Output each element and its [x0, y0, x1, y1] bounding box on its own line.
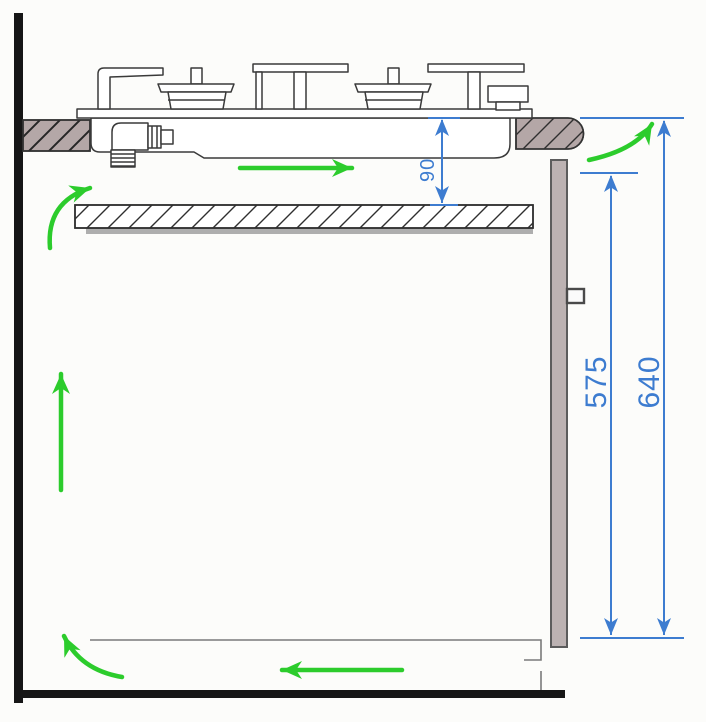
wall-section-bar [14, 13, 23, 703]
gas-elbow-icon [112, 123, 148, 150]
worktop-left [23, 120, 90, 151]
worktop-right [516, 118, 583, 149]
dimension-label-90: 90 [417, 158, 439, 182]
pan-support-icon [98, 68, 163, 109]
pan-support-icon [253, 64, 348, 109]
dimension-label-575: 575 [580, 355, 613, 408]
airflow-arrow-bottom-left [64, 636, 122, 677]
hob-top-plate [77, 109, 532, 118]
rear-panel [551, 160, 567, 647]
separator-shelf [75, 205, 533, 234]
airflow-arrow-top-right [589, 124, 652, 160]
burner-icon [158, 68, 234, 109]
dimension-label-640: 640 [633, 355, 666, 408]
burner-icon [355, 68, 431, 109]
pan-supports-and-burners [98, 64, 528, 110]
hob-installation-diagram: 90 575 640 [0, 0, 706, 722]
gas-hob [77, 64, 532, 167]
cabinet-bottom-outline [90, 640, 541, 690]
control-knob-icon [488, 86, 528, 110]
panel-bracket [567, 289, 584, 303]
floor-section-bar [23, 690, 565, 698]
